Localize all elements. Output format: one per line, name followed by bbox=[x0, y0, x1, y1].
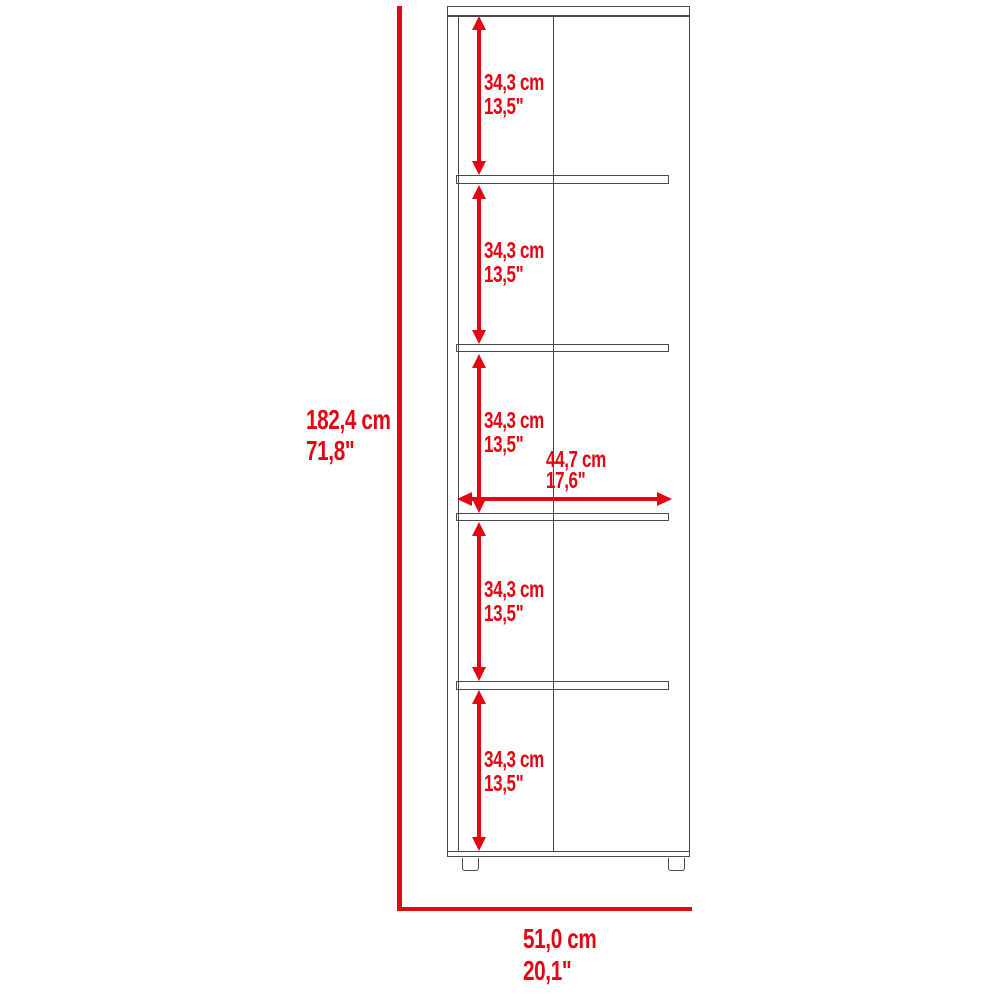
section-5-cm: 34,3 cm bbox=[484, 747, 544, 771]
arrow-shaft bbox=[477, 28, 481, 163]
section-2-label: 34,3 cm 13,5" bbox=[484, 238, 544, 286]
arrow-shaft bbox=[477, 534, 481, 670]
section-1-inch: 13,5" bbox=[484, 94, 544, 118]
arrow-shaft bbox=[477, 702, 481, 839]
section-1-cm: 34,3 cm bbox=[484, 70, 544, 94]
section-3-inch: 13,5" bbox=[484, 432, 544, 456]
arrow-shaft bbox=[477, 197, 481, 332]
shelf-2 bbox=[456, 344, 669, 353]
section-3-label: 34,3 cm 13,5" bbox=[484, 408, 544, 456]
overall-height-label: 182,4 cm 71,8" bbox=[306, 404, 391, 466]
overall-height-cm: 182,4 cm bbox=[306, 404, 391, 435]
section-1-label: 34,3 cm 13,5" bbox=[484, 70, 544, 118]
section-2-cm: 34,3 cm bbox=[484, 238, 544, 262]
dimension-diagram: 182,4 cm 71,8" 51,0 cm 20,1" 44,7 cm 17,… bbox=[0, 0, 1000, 1000]
shelf-1 bbox=[456, 175, 669, 184]
arrow-shaft bbox=[469, 497, 660, 501]
section-2-inch: 13,5" bbox=[484, 262, 544, 286]
overall-width-label: 51,0 cm 20,1" bbox=[523, 923, 596, 987]
section-4-label: 34,3 cm 13,5" bbox=[484, 577, 544, 625]
cabinet-center-divider-line bbox=[553, 15, 555, 851]
overall-width-inch: 20,1" bbox=[523, 955, 596, 987]
section-5-label: 34,3 cm 13,5" bbox=[484, 747, 544, 795]
section-4-cm: 34,3 cm bbox=[484, 577, 544, 601]
section-5-inch: 13,5" bbox=[484, 771, 544, 795]
overall-height-inch: 71,8" bbox=[306, 435, 391, 466]
cabinet-left-panel-line bbox=[458, 15, 460, 851]
shelf-4 bbox=[456, 681, 669, 690]
interior-width-inch: 17,6" bbox=[546, 470, 606, 491]
section-3-cm: 34,3 cm bbox=[484, 408, 544, 432]
cabinet-bottom-panel-line bbox=[447, 851, 690, 853]
overall-width-cm: 51,0 cm bbox=[523, 923, 596, 955]
interior-width-arrow bbox=[457, 492, 672, 506]
interior-width-label: 44,7 cm 17,6" bbox=[546, 449, 606, 491]
shelf-3 bbox=[456, 513, 669, 522]
overall-width-dimension-line bbox=[397, 907, 692, 912]
arrow-shaft bbox=[477, 366, 481, 501]
cabinet-foot-right bbox=[668, 858, 685, 871]
overall-height-dimension-line bbox=[397, 6, 402, 911]
cabinet-foot-left bbox=[462, 858, 479, 871]
section-4-inch: 13,5" bbox=[484, 601, 544, 625]
